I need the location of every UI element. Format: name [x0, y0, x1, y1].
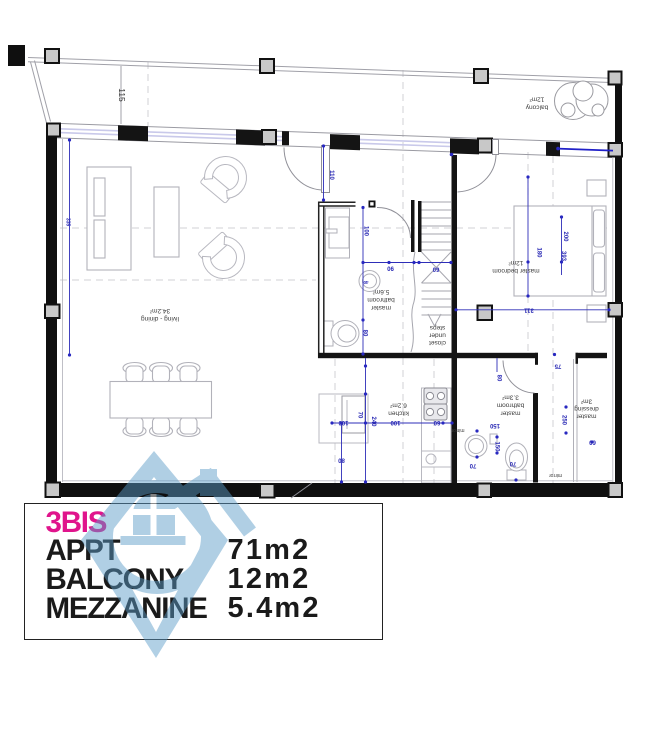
svg-text:100: 100 [363, 226, 369, 237]
svg-text:kitchen: kitchen [388, 410, 409, 417]
svg-text:3.3m²: 3.3m² [501, 394, 518, 401]
svg-text:311: 311 [524, 307, 534, 313]
svg-text:bathroom: bathroom [367, 296, 394, 303]
svg-text:100: 100 [390, 419, 401, 425]
svg-text:60: 60 [432, 266, 439, 272]
svg-text:mirror: mirror [451, 427, 464, 433]
svg-text:60: 60 [433, 419, 440, 425]
svg-text:70: 70 [509, 460, 516, 466]
svg-text:under: under [428, 332, 445, 339]
svg-text:closet: closet [429, 339, 446, 346]
svg-text:200: 200 [562, 231, 568, 242]
svg-text:master bedroom: master bedroom [492, 267, 539, 274]
svg-text:6.2m²: 6.2m² [389, 402, 406, 409]
svg-text:393: 393 [560, 251, 566, 262]
svg-text:180: 180 [536, 247, 542, 258]
svg-text:80: 80 [338, 457, 345, 463]
svg-text:3m²: 3m² [580, 398, 592, 405]
svg-text:12m²: 12m² [508, 259, 524, 266]
svg-text:70: 70 [469, 462, 476, 468]
svg-text:90: 90 [387, 265, 394, 271]
svg-text:100: 100 [338, 419, 349, 425]
svg-text:40: 40 [363, 280, 369, 285]
svg-text:115: 115 [117, 88, 127, 102]
svg-text:master: master [500, 410, 521, 417]
svg-text:250: 250 [561, 415, 567, 426]
svg-text:80: 80 [496, 375, 502, 382]
svg-text:living - dining: living - dining [141, 315, 179, 322]
svg-text:70: 70 [357, 412, 363, 419]
svg-text:dressing: dressing [574, 405, 599, 412]
svg-text:12m²: 12m² [529, 96, 545, 103]
svg-text:240: 240 [370, 416, 376, 427]
svg-text:balcony: balcony [525, 104, 548, 111]
svg-text:steps: steps [429, 324, 445, 331]
svg-text:150: 150 [494, 441, 500, 452]
svg-text:75: 75 [554, 363, 561, 369]
svg-text:mirror: mirror [549, 472, 562, 478]
svg-text:60: 60 [589, 439, 596, 445]
svg-text:335: 335 [65, 218, 71, 227]
svg-text:80: 80 [362, 330, 368, 337]
svg-text:master: master [576, 413, 597, 420]
svg-text:34.2m²: 34.2m² [149, 307, 170, 314]
svg-text:bathroom: bathroom [497, 402, 524, 409]
svg-text:5.6m²: 5.6m² [372, 288, 389, 295]
svg-text:110: 110 [328, 170, 334, 180]
svg-text:150: 150 [489, 422, 500, 428]
svg-text:master: master [370, 304, 391, 311]
